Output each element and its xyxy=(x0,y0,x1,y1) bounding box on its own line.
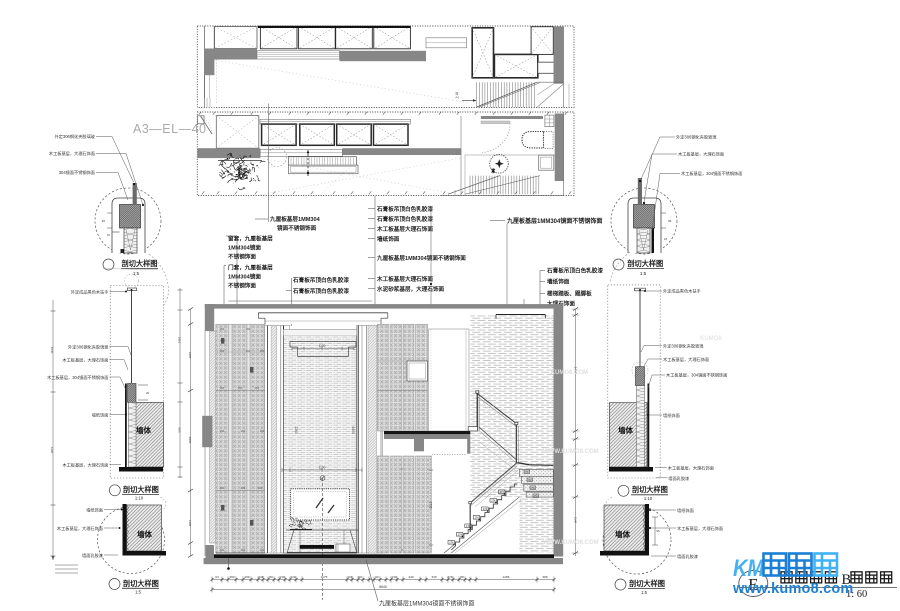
svg-text:木工板基层，304镜面不锈钢饰面: 木工板基层，304镜面不锈钢饰面 xyxy=(681,170,742,177)
svg-text:墙纸饰面: 墙纸饰面 xyxy=(377,235,400,243)
svg-text:60: 60 xyxy=(375,575,379,579)
svg-text:300: 300 xyxy=(241,486,246,490)
svg-text:墙纸饰面: 墙纸饰面 xyxy=(677,507,694,514)
svg-text:174: 174 xyxy=(458,533,463,536)
svg-text:不锈钢饰面: 不锈钢饰面 xyxy=(228,253,256,261)
svg-text:300: 300 xyxy=(260,349,265,353)
svg-text:WWW.KUMO8.COM: WWW.KUMO8.COM xyxy=(543,540,599,546)
svg-text:20: 20 xyxy=(146,391,150,395)
svg-text:695: 695 xyxy=(178,427,182,432)
svg-text:300: 300 xyxy=(229,575,234,579)
svg-text:木工板基层，大理石饰面: 木工板基层，大理石饰面 xyxy=(677,525,723,532)
svg-text:150: 150 xyxy=(246,327,251,331)
svg-text:木工板基层，304镜面不锈钢饰面: 木工板基层，304镜面不锈钢饰面 xyxy=(666,372,727,379)
svg-text:150: 150 xyxy=(260,429,265,433)
svg-text:KUMO8: KUMO8 xyxy=(700,336,722,342)
svg-text:35: 35 xyxy=(102,219,106,223)
svg-text:174: 174 xyxy=(483,508,488,511)
svg-text:2260: 2260 xyxy=(294,426,298,433)
svg-text:墙体: 墙体 xyxy=(136,425,151,435)
svg-text:镜面不锈钢饰面: 镜面不锈钢饰面 xyxy=(277,224,317,232)
svg-text:九厘板基层1MM304: 九厘板基层1MM304 xyxy=(269,215,321,223)
svg-text:300: 300 xyxy=(246,349,251,353)
svg-text:1200: 1200 xyxy=(50,447,54,454)
svg-text:www.kumo8.com: www.kumo8.com xyxy=(732,581,854,597)
svg-text:木工板基层，大理石饰面: 木工板基层，大理石饰面 xyxy=(678,151,724,158)
svg-text:窗套，九厘板基层: 窗套，九厘板基层 xyxy=(228,235,273,243)
svg-text:楼梯踏板、踢脚板: 楼梯踏板、踢脚板 xyxy=(547,290,592,298)
svg-text:250: 250 xyxy=(531,486,536,490)
svg-text:外定306钢化夹胶璃玻: 外定306钢化夹胶璃玻 xyxy=(68,344,109,351)
svg-text:墙纸饰面: 墙纸饰面 xyxy=(547,278,570,286)
svg-text:木工板基层，大理石饰面: 木工板基层，大理石饰面 xyxy=(663,356,709,363)
svg-text:外定成品黑色木扶手: 外定成品黑色木扶手 xyxy=(663,288,701,295)
svg-text:木工板基层，大理石饰面: 木工板基层，大理石饰面 xyxy=(49,150,95,157)
svg-text:九厘板基层1MM304镜面不锈钢饰面: 九厘板基层1MM304镜面不锈钢饰面 xyxy=(379,600,474,608)
svg-text:墙纸饰面: 墙纸饰面 xyxy=(86,507,103,514)
svg-text:1490: 1490 xyxy=(188,520,192,527)
svg-text:1140: 1140 xyxy=(574,517,578,524)
svg-text:304镜面不锈钢饰面: 304镜面不锈钢饰面 xyxy=(59,169,95,176)
svg-text:1:5: 1:5 xyxy=(133,271,140,276)
svg-text:300: 300 xyxy=(260,548,265,552)
svg-text:300: 300 xyxy=(241,548,246,552)
svg-text:石膏板吊顶白色乳胶漆: 石膏板吊顶白色乳胶漆 xyxy=(376,215,433,223)
svg-text:.KUMO8.COM: .KUMO8.COM xyxy=(549,370,588,376)
svg-text:2980: 2980 xyxy=(188,437,192,444)
svg-text:剖切大样图: 剖切大样图 xyxy=(123,579,159,588)
svg-text:340: 340 xyxy=(431,575,436,579)
svg-text:1735: 1735 xyxy=(429,501,433,508)
svg-text:木工板基层，大理石饰面: 木工板基层，大理石饰面 xyxy=(62,462,108,469)
svg-text:1:10: 1:10 xyxy=(135,496,144,501)
svg-text:剖切大样图: 剖切大样图 xyxy=(122,259,158,268)
svg-text:174: 174 xyxy=(466,525,471,528)
svg-text:石膏板吊顶白色乳胶漆: 石膏板吊顶白色乳胶漆 xyxy=(292,287,349,295)
svg-text:九厘板基层1MM304镜面不锈钢饰面: 九厘板基层1MM304镜面不锈钢饰面 xyxy=(376,254,466,262)
svg-text:150: 150 xyxy=(220,429,225,433)
svg-text:墙面乳胶漆: 墙面乳胶漆 xyxy=(677,553,698,560)
svg-text:木工板基层，大理石饰面: 木工板基层，大理石饰面 xyxy=(57,525,103,532)
svg-text:130: 130 xyxy=(391,575,396,579)
svg-text:80: 80 xyxy=(269,575,273,579)
svg-text:88: 88 xyxy=(460,575,464,579)
svg-text:1150: 1150 xyxy=(319,344,326,348)
svg-text:KM: KM xyxy=(733,555,765,582)
svg-text:95: 95 xyxy=(657,529,661,533)
svg-text:174: 174 xyxy=(474,516,479,519)
svg-text:墙体: 墙体 xyxy=(615,529,630,539)
svg-text:35: 35 xyxy=(668,219,672,223)
svg-text:石膏板吊顶白色乳胶漆: 石膏板吊顶白色乳胶漆 xyxy=(376,205,433,213)
svg-text:1286: 1286 xyxy=(503,575,510,579)
svg-text:1:5: 1:5 xyxy=(640,271,647,276)
svg-text:1910: 1910 xyxy=(178,337,182,344)
svg-text:100: 100 xyxy=(347,575,352,579)
svg-text:300: 300 xyxy=(220,349,225,353)
svg-text:440: 440 xyxy=(408,575,413,579)
svg-text:250: 250 xyxy=(534,494,539,498)
svg-text:剖切大样图: 剖切大样图 xyxy=(123,485,159,494)
svg-text:250: 250 xyxy=(528,478,533,482)
svg-text:不锈钢饰面: 不锈钢饰面 xyxy=(228,282,256,290)
svg-text:400: 400 xyxy=(244,575,249,579)
svg-text:18: 18 xyxy=(664,237,667,241)
svg-text:174: 174 xyxy=(491,499,496,502)
svg-text:64: 64 xyxy=(215,575,219,579)
svg-text:150: 150 xyxy=(241,429,246,433)
svg-text:276: 276 xyxy=(447,575,452,579)
svg-text:墙面乳胶漆: 墙面乳胶漆 xyxy=(82,552,103,559)
svg-text:外定306钢化夹胶玻璃: 外定306钢化夹胶玻璃 xyxy=(676,134,717,141)
svg-text:300: 300 xyxy=(238,386,243,390)
svg-text:1985: 1985 xyxy=(188,352,192,359)
svg-text:墙体: 墙体 xyxy=(618,425,633,435)
svg-text:墙体: 墙体 xyxy=(137,529,152,539)
svg-text:木工板基层大理石饰面: 木工板基层大理石饰面 xyxy=(376,225,433,233)
svg-text:剖切大样图: 剖切大样图 xyxy=(632,485,668,494)
svg-text:174: 174 xyxy=(449,541,454,544)
svg-text:木工板基层，大理石饰面: 木工板基层，大理石饰面 xyxy=(668,465,714,472)
svg-text:A3—EL—40: A3—EL—40 xyxy=(133,122,206,136)
svg-text:1100: 1100 xyxy=(319,466,326,470)
svg-text:1MM304镜面: 1MM304镜面 xyxy=(228,244,261,252)
svg-text:木工板基层，304镜面不锈钢饰面: 木工板基层，304镜面不锈钢饰面 xyxy=(47,374,108,381)
svg-text:木工板基层大理石饰面: 木工板基层大理石饰面 xyxy=(376,275,433,283)
svg-text:石膏板吊顶白色乳胶漆: 石膏板吊顶白色乳胶漆 xyxy=(292,276,349,284)
svg-text:300: 300 xyxy=(258,486,263,490)
svg-text:外定成品黑色木扶手: 外定成品黑色木扶手 xyxy=(71,289,109,296)
svg-text:剖切大样图: 剖切大样图 xyxy=(629,579,665,588)
svg-text:墙纸饰面: 墙纸饰面 xyxy=(663,412,680,419)
svg-text:8640: 8640 xyxy=(379,585,387,589)
svg-text:1:5: 1:5 xyxy=(641,590,647,595)
svg-text:10: 10 xyxy=(107,233,110,237)
svg-text:外定306钢化夹胶璃玻: 外定306钢化夹胶璃玻 xyxy=(55,133,96,140)
svg-text:木工板基层，大理石饰面: 木工板基层，大理石饰面 xyxy=(62,357,108,364)
svg-text:剖切大样图: 剖切大样图 xyxy=(627,259,663,268)
svg-text:90: 90 xyxy=(358,575,362,579)
svg-text:6450: 6450 xyxy=(351,426,355,433)
svg-text:1:10: 1:10 xyxy=(644,496,653,501)
svg-text:1175: 1175 xyxy=(321,575,328,579)
svg-text:1:5: 1:5 xyxy=(135,590,141,595)
svg-text:150: 150 xyxy=(220,327,225,331)
svg-text:石膏板吊顶白色乳胶漆: 石膏板吊顶白色乳胶漆 xyxy=(546,267,603,275)
svg-text:墙面乳胶漆: 墙面乳胶漆 xyxy=(668,475,689,482)
svg-text:九厘板基层1MM304镜面不锈钢饰面: 九厘板基层1MM304镜面不锈钢饰面 xyxy=(506,217,602,225)
svg-text:300: 300 xyxy=(255,386,260,390)
svg-text:140: 140 xyxy=(279,575,284,579)
svg-text:墙纸饰面: 墙纸饰面 xyxy=(92,412,109,419)
svg-text:WWW.KUMO8.COM: WWW.KUMO8.COM xyxy=(543,449,599,455)
svg-text:250: 250 xyxy=(525,470,530,474)
svg-text:水泥砂浆基层，大理石饰面: 水泥砂浆基层，大理石饰面 xyxy=(376,285,445,293)
svg-text:外定306钢化夹胶玻璃: 外定306钢化夹胶玻璃 xyxy=(663,343,704,350)
svg-text:300: 300 xyxy=(220,386,225,390)
svg-text:门套，九厘板基层: 门套，九厘板基层 xyxy=(228,264,273,272)
svg-text:386: 386 xyxy=(542,575,547,579)
svg-text:300: 300 xyxy=(220,548,225,552)
svg-text:上16: 上16 xyxy=(454,92,459,99)
svg-text:230: 230 xyxy=(258,575,263,579)
svg-text:300: 300 xyxy=(220,486,225,490)
svg-text:1MM304镜面: 1MM304镜面 xyxy=(228,273,261,281)
svg-text:174: 174 xyxy=(500,491,505,494)
svg-text:2640: 2640 xyxy=(50,347,54,354)
svg-text:120: 120 xyxy=(290,575,295,579)
